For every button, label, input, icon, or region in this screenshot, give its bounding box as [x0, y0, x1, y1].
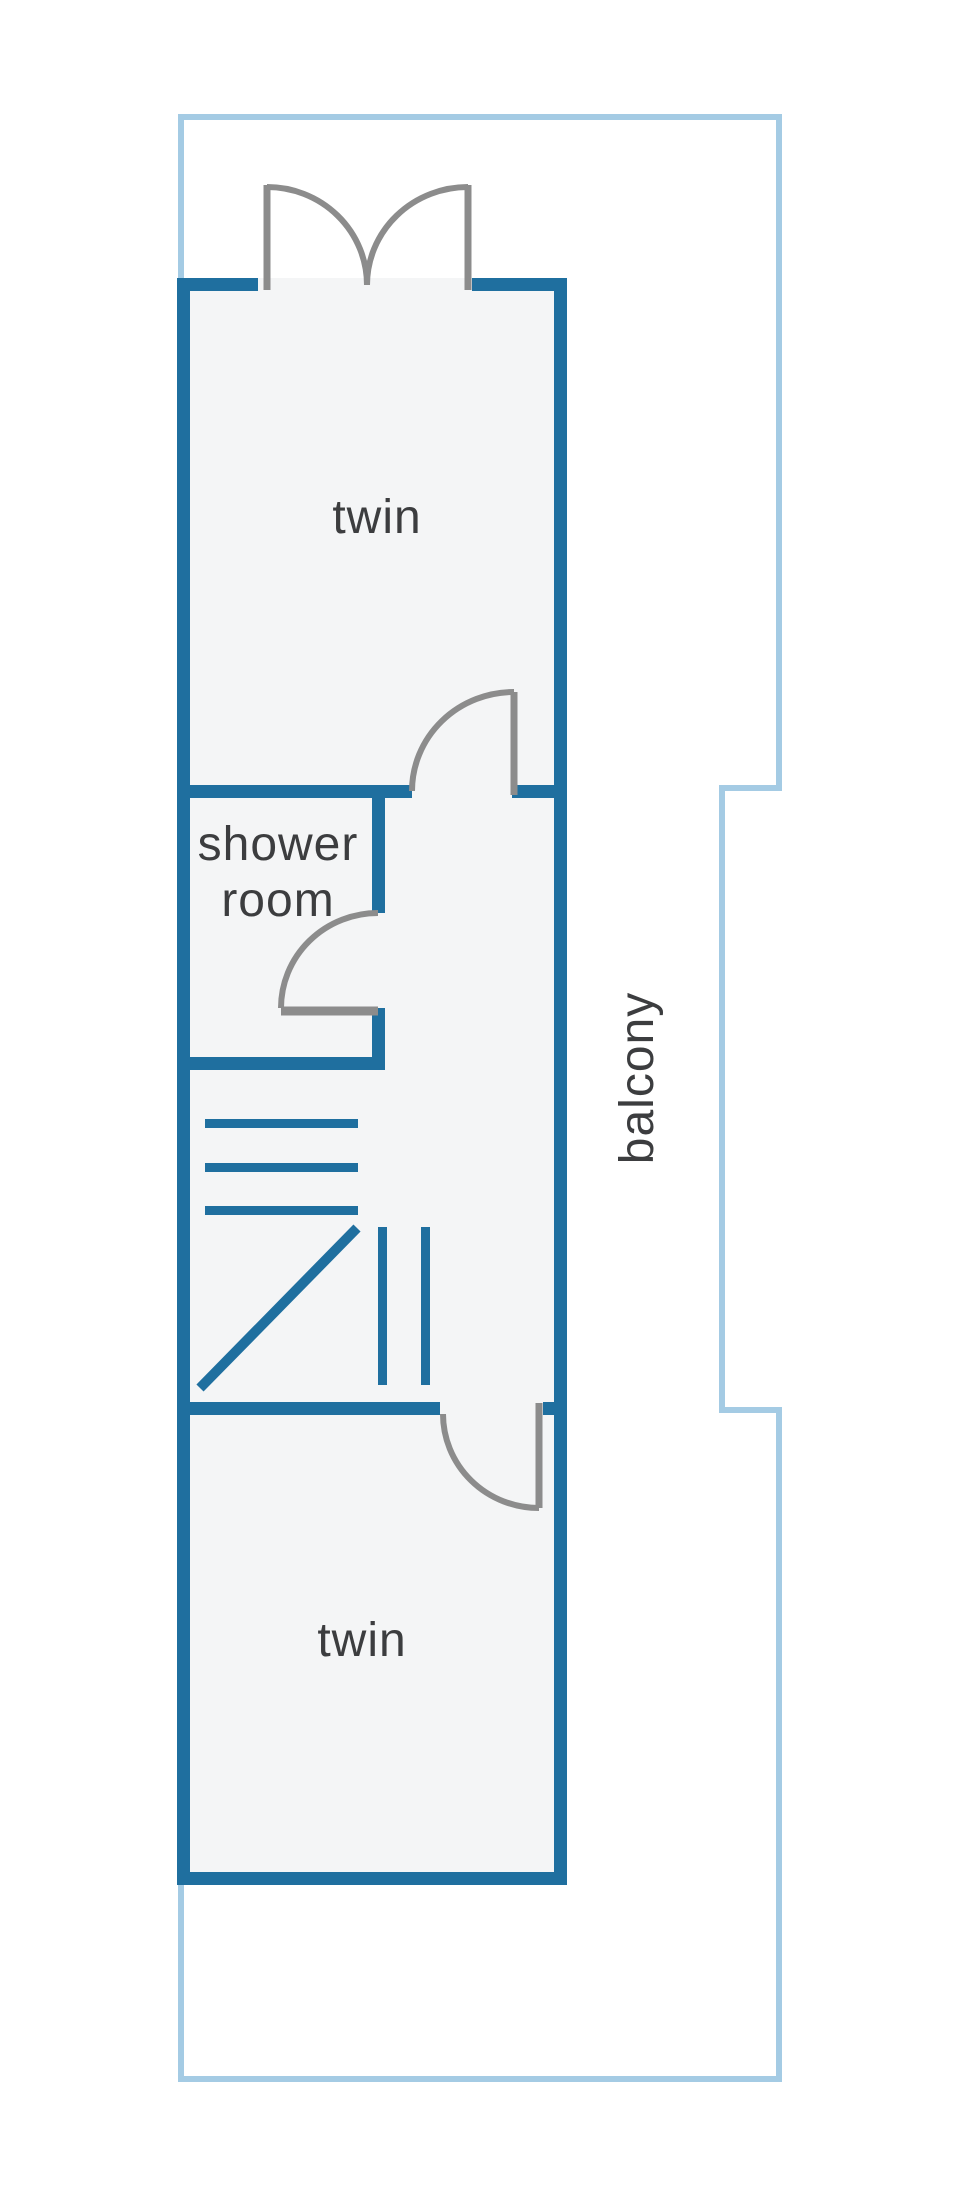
label-shower-room: shower room	[163, 817, 393, 929]
floor-plan: twin shower room twin balcony	[0, 0, 960, 2212]
wall-shower-bottom	[177, 1057, 385, 1070]
wall-right	[554, 278, 567, 1885]
wall-left	[177, 278, 190, 1885]
label-twin-top: twin	[332, 490, 421, 546]
wall-twin1-bottom-right	[512, 785, 567, 798]
stair-tread-3	[205, 1206, 358, 1215]
wall-twin2-top-left	[177, 1402, 440, 1415]
stair-tread-vertical-2	[421, 1227, 430, 1385]
wall-twin2-bottom	[177, 1872, 567, 1885]
stair-tread-2	[205, 1163, 358, 1172]
french-door-right-arc	[367, 187, 468, 285]
label-twin-bottom: twin	[317, 1613, 406, 1669]
floor-plan-drawing	[0, 0, 960, 2212]
label-balcony: balcony	[610, 992, 666, 1164]
wall-twin2-top-right	[543, 1402, 567, 1415]
french-door-left-arc	[267, 187, 367, 285]
stair-tread-1	[205, 1119, 358, 1128]
wall-twin1-top-left	[177, 278, 258, 291]
stair-tread-vertical-1	[378, 1227, 387, 1385]
wall-twin1-top-right	[472, 278, 567, 291]
